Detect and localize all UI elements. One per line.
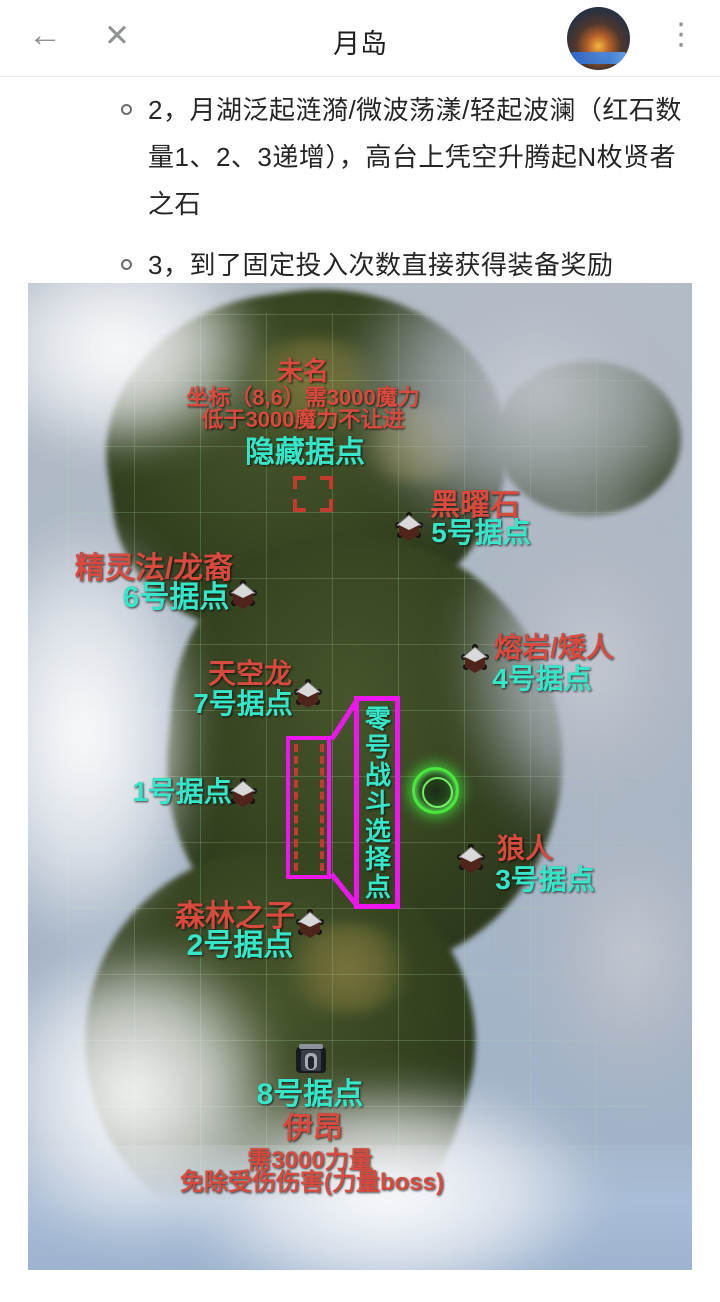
zero-point-label: 零号战斗选择点 <box>359 705 396 901</box>
bullet-text: 3，到了固定投入次数直接获得装备奖励 <box>148 242 613 289</box>
list-item: 3，到了固定投入次数直接获得装备奖励 <box>0 228 720 289</box>
fort-icon <box>295 908 325 940</box>
article-body: 2，月湖泛起涟漪/微波荡漾/轻起波澜（红石数量1、2、3递增），高台上凭空升腾起… <box>0 77 720 289</box>
base8-requirement-2: 免除受伤伤害(力量boss) <box>180 1170 444 1196</box>
avatar[interactable] <box>567 7 630 70</box>
base8-boss-name: 伊昂 <box>283 1112 343 1145</box>
portal-icon <box>412 767 459 814</box>
more-menu-icon[interactable]: ⋮ <box>666 20 696 50</box>
zero-point-markers <box>294 744 324 871</box>
base2-label: 2号据点 <box>187 929 294 962</box>
hidden-base-label: 隐藏据点 <box>245 436 365 469</box>
bullet-icon <box>121 104 132 115</box>
page-title: 月岛 <box>333 22 387 61</box>
zero-point-callout-box: 零号战斗选择点 <box>354 696 400 909</box>
hidden-boss-name: 未名 <box>277 357 329 386</box>
base3-label: 3号据点 <box>495 865 595 896</box>
hidden-base-marker-icon <box>293 476 333 512</box>
top-navigation-bar: ← ✕ 月岛 ⋮ <box>0 0 720 77</box>
fort-icon <box>228 777 258 809</box>
close-icon[interactable]: ✕ <box>104 20 130 51</box>
hidden-requirement-2: 低于3000魔力不让进 <box>202 408 405 432</box>
base3-boss-name: 狼人 <box>497 834 553 865</box>
base4-boss-name: 熔岩/矮人 <box>494 633 614 664</box>
base4-label: 4号据点 <box>492 664 592 695</box>
back-icon[interactable]: ← <box>28 18 62 52</box>
fort-icon <box>456 843 486 875</box>
base6-label: 6号据点 <box>123 581 230 614</box>
bullet-text: 2，月湖泛起涟漪/微波荡漾/轻起波澜（红石数量1、2、3递增），高台上凭空升腾起… <box>148 87 692 228</box>
base8-label: 8号据点 <box>257 1078 364 1111</box>
base7-label: 7号据点 <box>193 689 293 720</box>
fort-icon <box>394 511 424 543</box>
base5-label: 5号据点 <box>431 518 531 549</box>
base7-boss-name: 天空龙 <box>208 659 292 690</box>
fort-icon <box>460 643 490 675</box>
base1-label: 1号据点 <box>132 777 232 808</box>
temple-icon <box>293 1040 329 1076</box>
fort-icon <box>293 678 323 710</box>
moon-island-map-image[interactable]: 未名 坐标（8,6）需3000魔力 低于3000魔力不让进 隐藏据点 黑曜石 5… <box>28 283 692 1270</box>
bullet-icon <box>121 259 132 270</box>
list-item: 2，月湖泛起涟漪/微波荡漾/轻起波澜（红石数量1、2、3递增），高台上凭空升腾起… <box>0 77 720 228</box>
